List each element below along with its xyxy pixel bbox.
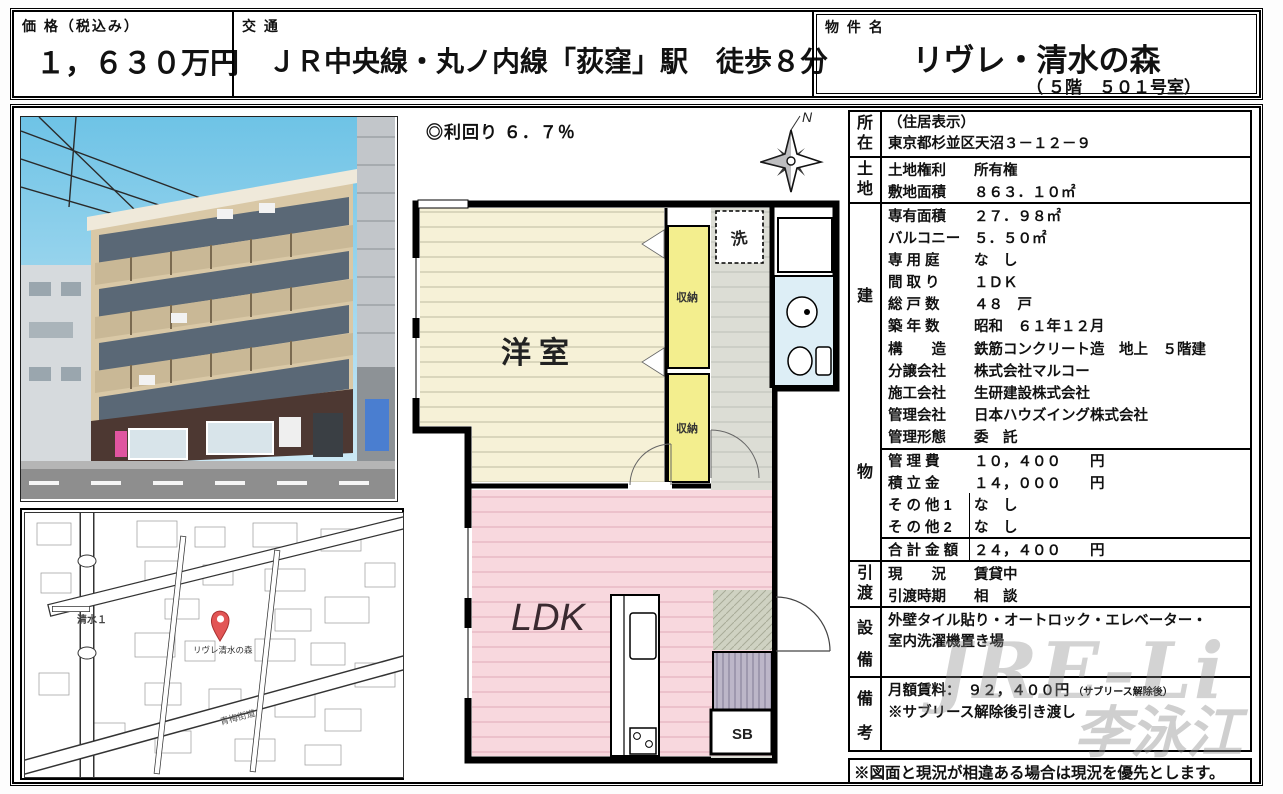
- building-photo: [20, 116, 398, 502]
- section-remarks: 備 考 月額賃料： ９２，４００円 （サブリース解除後） ※サブリース解除後引き…: [850, 678, 1250, 750]
- remarks-rent-note: （サブリース解除後）: [1073, 687, 1173, 698]
- transport-label: 交 通: [242, 16, 280, 36]
- property-name-label: 物 件 名: [825, 17, 885, 37]
- transport-cell: 交 通 ＪＲ中央線・丸ノ内線「荻窪」駅 徒歩８分: [232, 12, 812, 96]
- stove-icon: [630, 728, 656, 754]
- price-label: 価 格（税込み）: [22, 16, 140, 36]
- facilities-line2: 室内洗濯機置き場: [888, 632, 1244, 653]
- floor-plan: 洋室 収納 収納 洗: [406, 198, 876, 781]
- section-building: 建 物 専有面積２７．９８㎡ バルコニー５．５０㎡ 専 用 庭な し 間 取 り…: [850, 204, 1250, 562]
- table-row: 分譲会社株式会社マルコー: [882, 359, 1250, 381]
- area-map-drawing: 清水１ 青梅街道 リヴレ清水の森: [24, 512, 404, 778]
- section-remarks-label: 備 考: [850, 678, 882, 750]
- entry-hall-area: [713, 590, 772, 650]
- price-cell: 価 格（税込み） １，６３０万円: [14, 12, 232, 96]
- table-row: バルコニー５．５０㎡: [882, 226, 1250, 248]
- price-value: １，６３０万円: [14, 40, 232, 82]
- remarks-rent-line: 月額賃料： ９２，４００円 （サブリース解除後）: [888, 681, 1244, 703]
- area-map: 清水１ 青梅街道 リヴレ清水の森: [20, 508, 404, 780]
- compass-icon: N: [760, 108, 824, 200]
- building-rows-upper: 専有面積２７．９８㎡ バルコニー５．５０㎡ 専 用 庭な し 間 取 り１ＤＫ …: [882, 204, 1250, 450]
- property-details-table: 所 在 （住居表示） 東京都杉並区天沼３－１２－９ 土 地 土地権利所有権: [848, 110, 1252, 752]
- table-row: 専 用 庭な し: [882, 248, 1250, 270]
- main-frame: 清水１ 青梅街道 リヴレ清水の森 ◎利回り ６．７％ N: [10, 104, 1263, 786]
- table-row: 管理会社日本ハウズイング株式会社: [882, 403, 1250, 425]
- section-facilities-label: 設 備: [850, 608, 882, 676]
- section-location-label: 所 在: [850, 112, 882, 156]
- building-rows-fees: 管 理 費１０，４００ 円 積 立 金１４，０００ 円 そ の 他 1な し そ…: [882, 450, 1250, 537]
- compass-north-label: N: [802, 109, 813, 125]
- table-row: 敷地面積８６３．１０㎡: [882, 180, 1250, 202]
- table-row: 専有面積２７．９８㎡: [882, 204, 1250, 226]
- bathtub-area: [778, 218, 832, 272]
- table-row: 土地権利所有権: [882, 158, 1250, 180]
- map-district-label: 清水１: [77, 613, 107, 626]
- table-row: 現 況賃貸中: [882, 562, 1250, 584]
- shoe-box-label: SB: [732, 726, 753, 743]
- ldk-label: LDK: [511, 597, 587, 639]
- yield-note: ◎利回り ６．７％: [426, 118, 576, 143]
- table-row: 総 戸 数４８ 戸: [882, 293, 1250, 315]
- kitchen-sink-icon: [630, 613, 656, 659]
- entrance-door-arc: [776, 597, 830, 651]
- floor-plan-drawing: 洋室 収納 収納 洗: [406, 198, 876, 776]
- total-fee-row: 合 計 金 額 ２４，４００ 円: [882, 537, 1250, 560]
- map-pin-label: リヴレ清水の森: [193, 645, 253, 655]
- toilet-icon: [788, 347, 812, 375]
- section-location: 所 在 （住居表示） 東京都杉並区天沼３－１２－９: [850, 112, 1250, 158]
- storage-lower-label: 収納: [676, 421, 698, 435]
- storage-upper-label: 収納: [676, 290, 698, 304]
- section-land-label: 土 地: [850, 158, 882, 202]
- genkan-area: [713, 652, 772, 710]
- building-photo-drawing: [21, 117, 395, 499]
- table-row: 築 年 数昭和 ６１年１２月: [882, 315, 1250, 337]
- section-land: 土 地 土地権利所有権 敷地面積８６３．１０㎡: [850, 158, 1250, 204]
- property-name-cell: 物 件 名 リヴレ・清水の森 （ ５階 ５０１号室）: [812, 12, 1259, 96]
- washbasin-icon: [787, 297, 817, 327]
- transport-value: ＪＲ中央線・丸ノ内線「荻窪」駅 徒歩８分: [234, 40, 812, 80]
- property-name-box: 物 件 名 リヴレ・清水の森 （ ５階 ５０１号室）: [816, 14, 1257, 94]
- table-row: そ の 他 2な し: [882, 515, 1250, 537]
- property-flyer-page: 価 格（税込み） １，６３０万円 交 通 ＪＲ中央線・丸ノ内線「荻窪」駅 徒歩８…: [0, 0, 1283, 794]
- table-row: 管理形態委 託: [882, 426, 1250, 448]
- remarks-line2: ※サブリース解除後引き渡し: [888, 703, 1244, 724]
- property-room-number: （ ５階 ５０１号室）: [1026, 73, 1201, 98]
- compass-rose: N: [760, 108, 824, 205]
- table-row: 構 造鉄筋コンクリート造 地上 ５階建: [882, 337, 1250, 359]
- table-row: 施工会社生研建設株式会社: [882, 381, 1250, 403]
- header-band: 価 格（税込み） １，６３０万円 交 通 ＪＲ中央線・丸ノ内線「荻窪」駅 徒歩８…: [10, 8, 1263, 100]
- western-room-label: 洋室: [501, 336, 577, 370]
- table-row: 引渡時期相 談: [882, 584, 1250, 606]
- table-row: 積 立 金１４，０００ 円: [882, 472, 1250, 494]
- section-handover: 引 渡 現 況賃貸中 引渡時期相 談: [850, 562, 1250, 608]
- disclaimer-note: ※図面と現況が相違ある場合は現況を優先とします。: [848, 758, 1252, 784]
- section-building-label: 建 物: [850, 204, 882, 560]
- table-row: 管 理 費１０，４００ 円: [882, 450, 1250, 472]
- section-facilities: 設 備 外壁タイル貼り・オートロック・エレベーター・ 室内洗濯機置き場: [850, 608, 1250, 678]
- table-row: 間 取 り１ＤＫ: [882, 270, 1250, 292]
- location-line2: 東京都杉並区天沼３－１２－９: [888, 134, 1244, 155]
- table-row: そ の 他 1な し: [882, 493, 1250, 515]
- facilities-line1: 外壁タイル貼り・オートロック・エレベーター・: [888, 611, 1244, 632]
- location-line1: （住居表示）: [888, 113, 1244, 134]
- section-handover-label: 引 渡: [850, 562, 882, 606]
